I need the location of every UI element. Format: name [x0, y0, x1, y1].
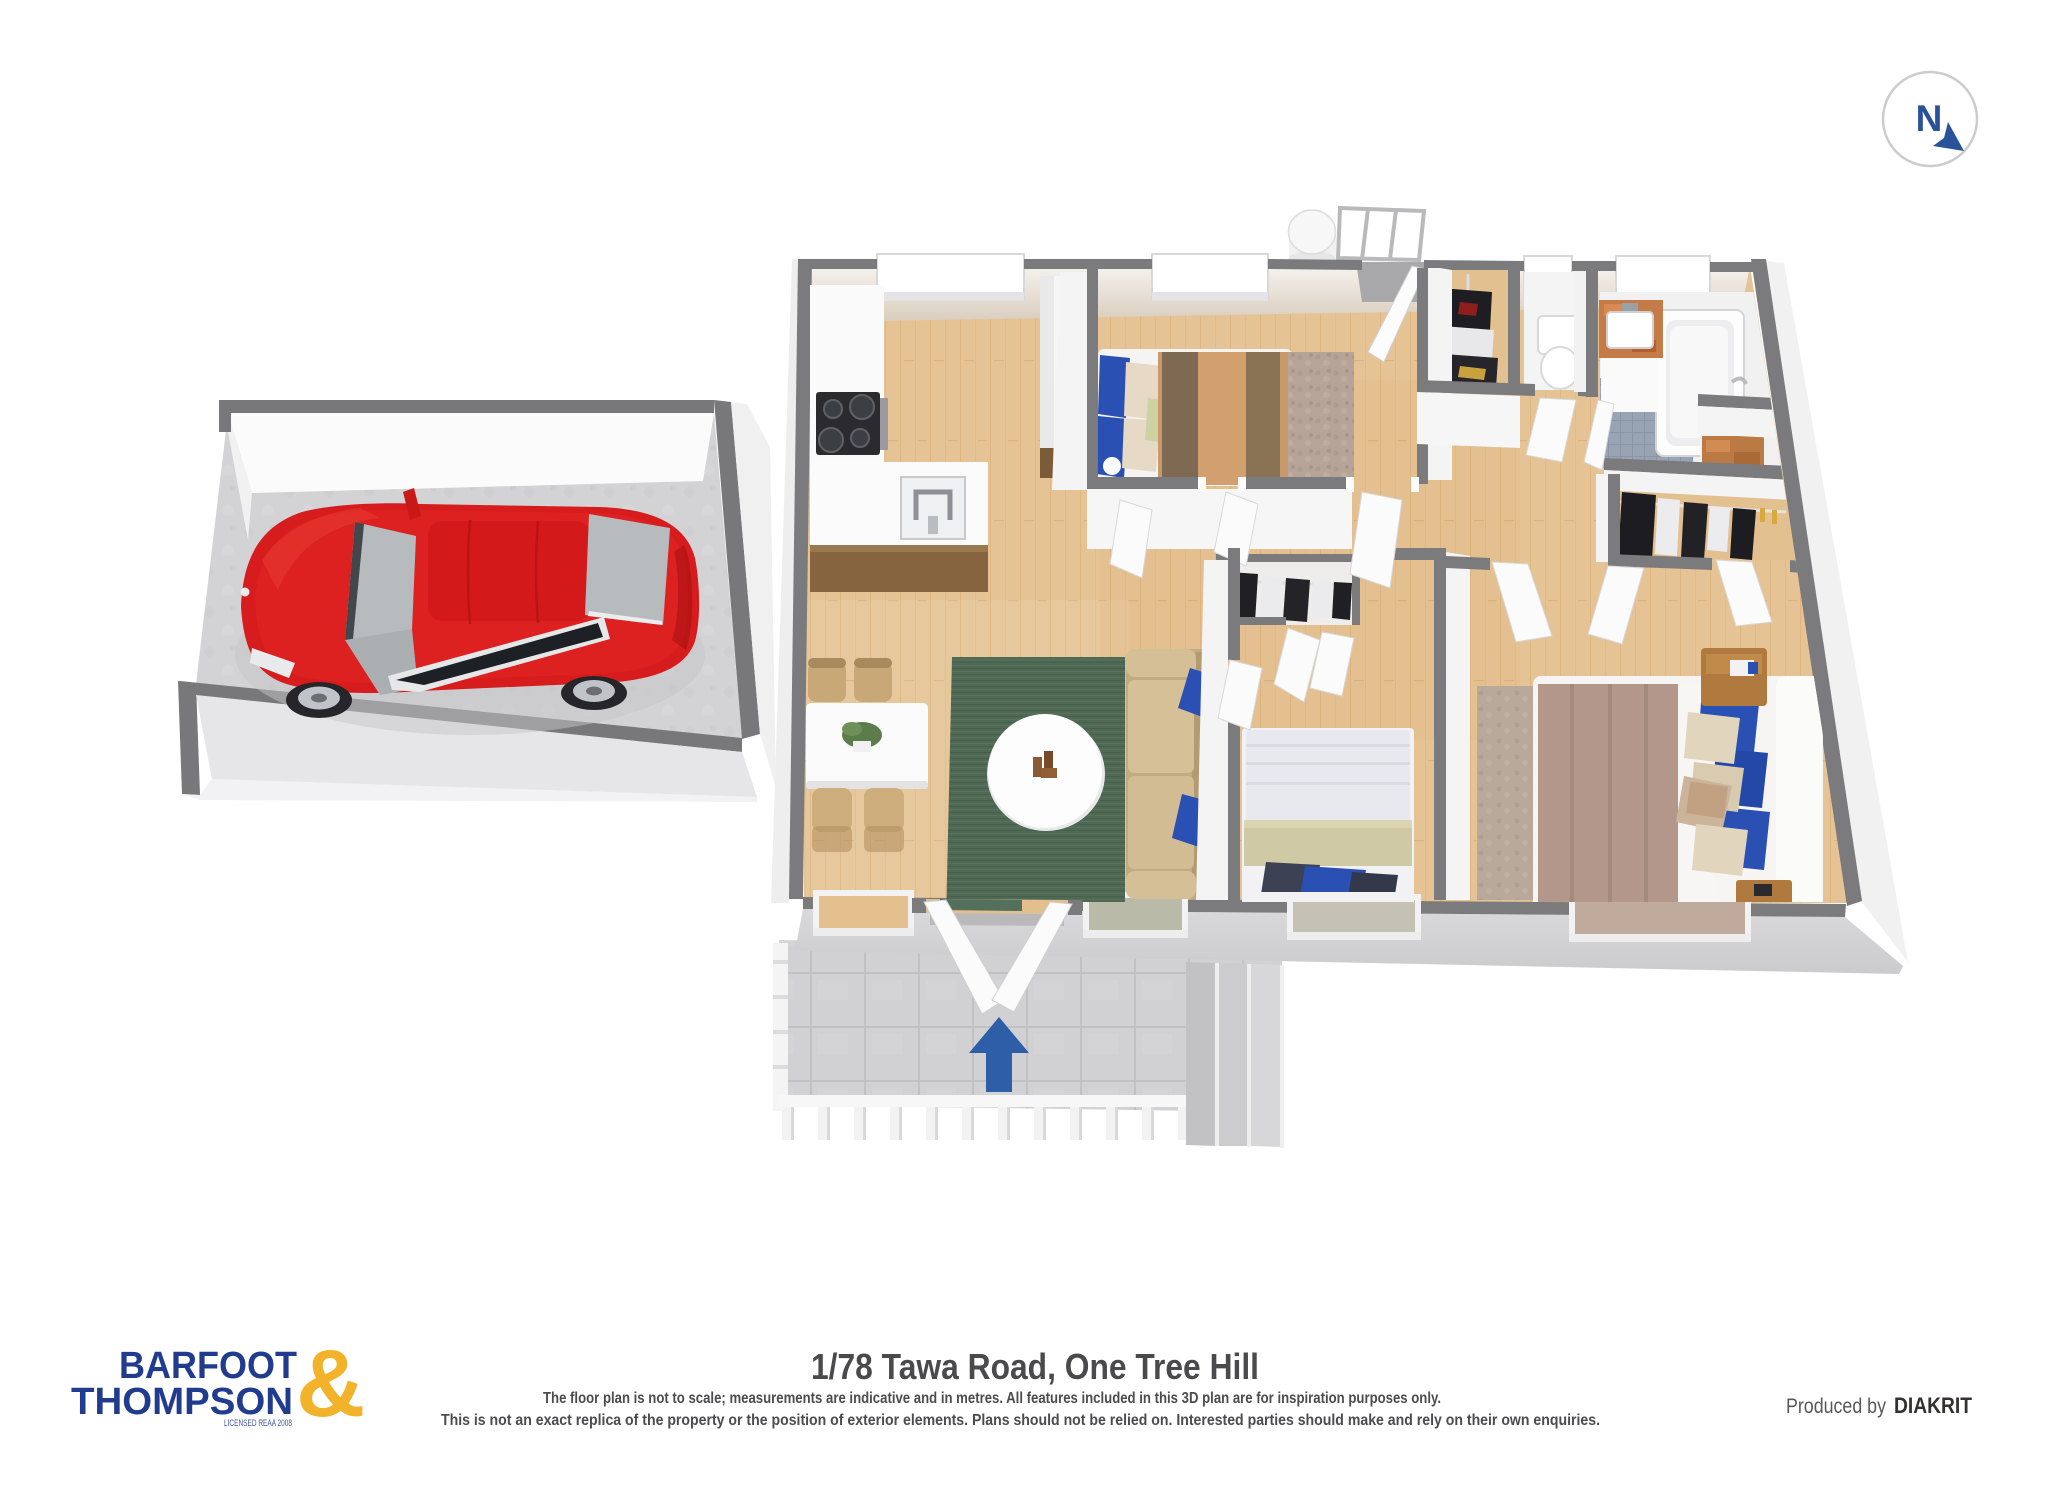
svg-text:N: N [1916, 98, 1943, 139]
svg-text:LICENSED REAA 2008: LICENSED REAA 2008 [224, 1418, 292, 1428]
svg-text:&: & [296, 1330, 365, 1437]
svg-text:DIAKRIT: DIAKRIT [1894, 1393, 1972, 1418]
svg-text:THOMPSON: THOMPSON [71, 1381, 293, 1423]
svg-text:This is not an exact replica o: This is not an exact replica of the prop… [441, 1412, 1600, 1429]
svg-text:1/78 Tawa Road, One Tree Hill: 1/78 Tawa Road, One Tree Hill [811, 1346, 1259, 1387]
svg-text:The floor plan is not to scale: The floor plan is not to scale; measurem… [543, 1390, 1441, 1407]
svg-text:Produced by: Produced by [1786, 1395, 1886, 1418]
